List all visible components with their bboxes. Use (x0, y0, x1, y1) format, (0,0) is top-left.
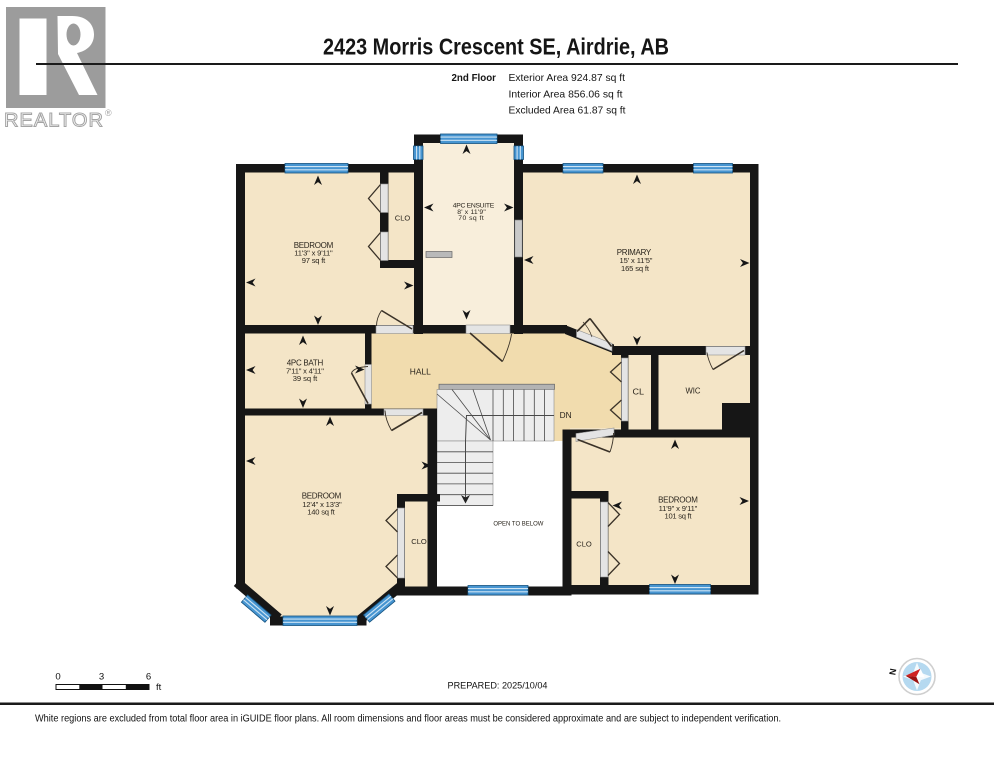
svg-text:CLO: CLO (411, 537, 427, 546)
svg-text:3: 3 (99, 672, 104, 683)
svg-text:CL: CL (633, 388, 645, 397)
svg-text:Interior Area 856.06 sq ft: Interior Area 856.06 sq ft (509, 88, 623, 100)
svg-text:Excluded Area 61.87 sq ft: Excluded Area 61.87 sq ft (509, 105, 626, 117)
svg-text:2423 Morris Crescent SE, Airdr: 2423 Morris Crescent SE, Airdrie, AB (323, 34, 669, 60)
svg-text:6: 6 (146, 672, 151, 683)
svg-text:White regions are excluded fro: White regions are excluded from total fl… (35, 714, 781, 725)
svg-text:DN: DN (560, 411, 572, 420)
svg-text:REALTOR: REALTOR (4, 111, 104, 132)
svg-text:70 sq ft: 70 sq ft (458, 215, 484, 222)
svg-text:97 sq ft: 97 sq ft (302, 256, 326, 265)
svg-text:ft: ft (156, 682, 162, 693)
svg-text:HALL: HALL (410, 368, 431, 377)
svg-text:OPEN TO BELOW: OPEN TO BELOW (493, 520, 544, 527)
svg-text:WIC: WIC (686, 387, 701, 396)
svg-text:CLO: CLO (395, 214, 411, 223)
svg-text:N: N (887, 668, 898, 676)
svg-text:2nd Floor: 2nd Floor (452, 72, 497, 84)
svg-text:0: 0 (55, 672, 60, 683)
svg-text:CLO: CLO (576, 540, 592, 549)
svg-text:39 sq ft: 39 sq ft (293, 374, 318, 383)
svg-text:Exterior Area 924.87 sq ft: Exterior Area 924.87 sq ft (509, 72, 626, 84)
svg-text:101 sq ft: 101 sq ft (665, 512, 693, 521)
svg-text:140 sq ft: 140 sq ft (307, 508, 335, 517)
svg-text:®: ® (105, 108, 112, 118)
svg-text:165 sq ft: 165 sq ft (621, 264, 650, 273)
svg-text:PREPARED: 2025/10/04: PREPARED: 2025/10/04 (448, 681, 549, 692)
